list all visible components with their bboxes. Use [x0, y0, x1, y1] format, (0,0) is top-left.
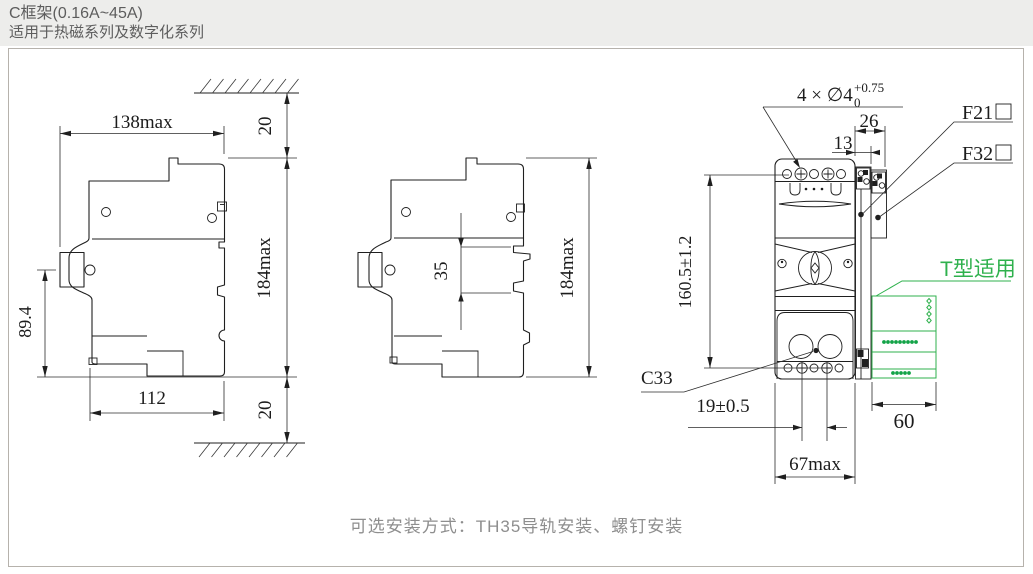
- dimension-160-5: 160.5±1.2: [675, 175, 828, 368]
- t-type-label: T型适用: [940, 258, 1016, 281]
- terminal-screw-cross-icon: [797, 170, 833, 179]
- breaker-side-profile: [60, 158, 227, 376]
- dim-label-height-tol: 160.5±1.2: [675, 236, 695, 309]
- side-view-left: 138max 20 184max 20 89.4: [15, 79, 305, 457]
- t-type-callout: T型适用: [876, 258, 1016, 296]
- dimension-89-4: 89.4: [15, 270, 56, 377]
- dimension-height-184max: 184max: [254, 158, 287, 377]
- wall-hatch-top-icon: [194, 79, 299, 93]
- label-plate: [779, 201, 851, 207]
- f32-leader-dot: [875, 215, 881, 221]
- dimension-gap-bottom-20: 20: [37, 377, 297, 443]
- dim-label-module-width: 60: [894, 409, 915, 433]
- dimension-19: 19±0.5: [688, 361, 847, 441]
- hole-callout-tolerance-lower: 0: [854, 95, 861, 110]
- dim-label-width-bottom: 112: [138, 388, 166, 409]
- f32-label: F32: [962, 143, 993, 165]
- accessory-f32-unit: [871, 170, 887, 238]
- c33-reference-point: [813, 348, 818, 353]
- dim-label-26: 26: [860, 111, 879, 132]
- f21-label: F21: [962, 102, 993, 124]
- breaker-front-body: [775, 159, 855, 379]
- dimension-height-184max-din: 184max: [526, 158, 597, 377]
- f32-callout: F32: [880, 143, 1013, 217]
- side-latch-clip: [218, 202, 227, 211]
- hole-callout-tolerance-upper: +0.75: [854, 80, 884, 95]
- f32-size-placeholder-box: [996, 145, 1011, 160]
- wall-hatch-bottom-icon: [194, 443, 305, 457]
- din-rail-clip-icon: [857, 349, 869, 368]
- dim-label-rail-slot: 35: [431, 262, 452, 281]
- handle-shaft-boss: [358, 253, 382, 288]
- dim-label-handle-height: 89.4: [15, 306, 35, 338]
- dimension-60: 60: [872, 382, 936, 433]
- callout-mounting-holes: 4 × ∅4 +0.75 0: [763, 80, 903, 168]
- dim-label-height: 184max: [557, 237, 578, 299]
- dim-label-pitch: 19±0.5: [696, 396, 749, 417]
- dimension-26: 26: [855, 111, 885, 167]
- dimension-138max: 138max: [60, 112, 224, 247]
- technical-drawing-canvas: 138max 20 184max 20 89.4: [0, 0, 1033, 574]
- mounting-caption: 可选安装方式：TH35导轨安装、螺钉安装: [0, 512, 1033, 537]
- c33-label: C33: [641, 368, 673, 389]
- handle-shaft-boss: [60, 253, 84, 288]
- dimension-67max: 67max: [775, 383, 855, 484]
- dimension-gap-top-20: 20: [228, 93, 297, 158]
- datasheet-page: C框架(0.16A~45A) 适用于热磁系列及数字化系列: [0, 0, 1033, 574]
- dim-label-13: 13: [834, 133, 853, 154]
- module-vent-diamonds-icon: [927, 299, 931, 324]
- dim-label-width-top: 138max: [111, 112, 173, 133]
- f21-size-placeholder-box: [996, 104, 1011, 119]
- side-view-din-rail: 35 184max: [358, 158, 597, 377]
- rotary-handle-icon: [799, 252, 832, 285]
- dim-label-gap-top: 20: [255, 117, 276, 136]
- dimension-rail-35: 35: [431, 213, 511, 330]
- hole-callout-label: 4 × ∅4: [797, 85, 853, 106]
- dim-label-height: 184max: [254, 237, 275, 299]
- t-type-module: [872, 296, 936, 378]
- dim-label-gap-bottom: 20: [255, 401, 276, 420]
- f21-leader-dot: [858, 212, 864, 218]
- accessory-f21-strip: [856, 167, 872, 379]
- module-terminal-dots-icon: [882, 340, 918, 375]
- dim-label-width: 67max: [789, 454, 841, 475]
- front-view: T型适用 4 × ∅4 +0.75 0 26: [641, 80, 1016, 484]
